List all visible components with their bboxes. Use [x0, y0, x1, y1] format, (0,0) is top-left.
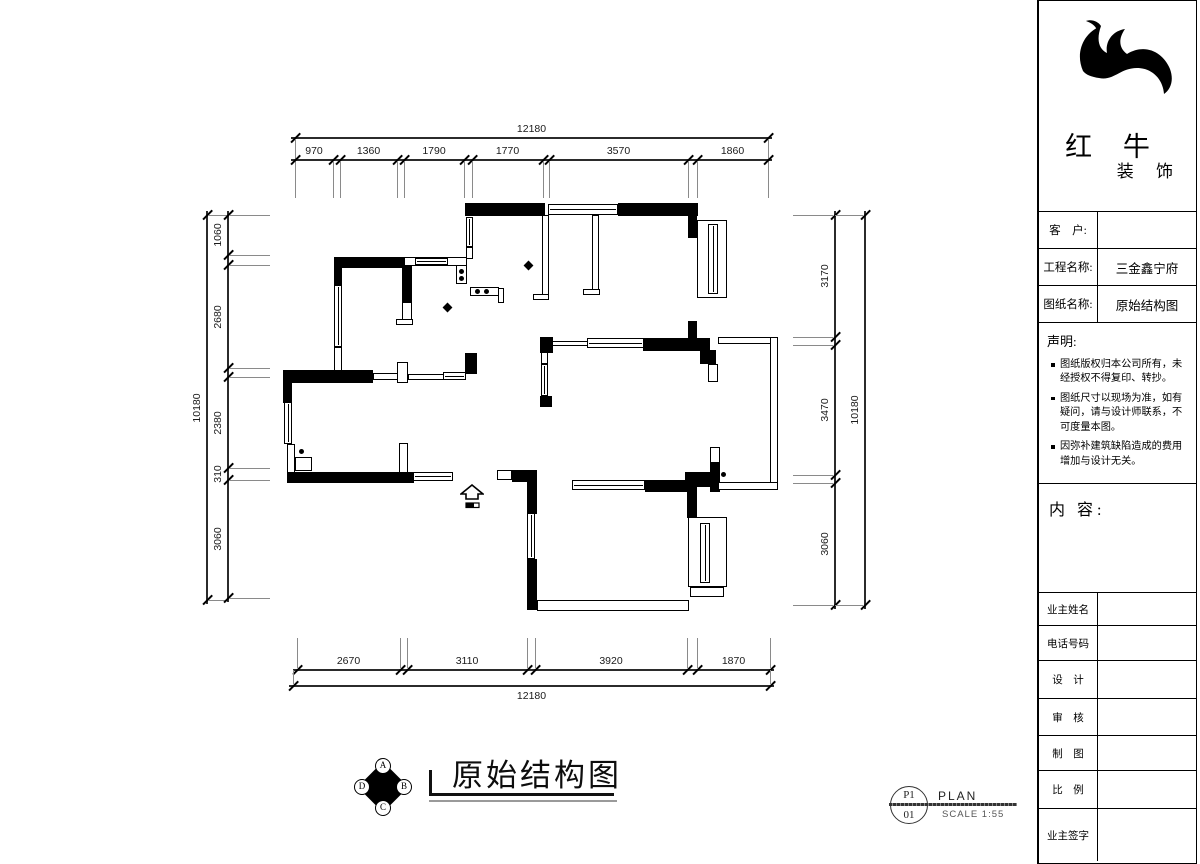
wall-segment	[527, 559, 537, 610]
window	[466, 217, 473, 247]
extension-line	[230, 265, 270, 266]
pipe-dot	[459, 269, 464, 274]
extension-line	[768, 162, 769, 198]
client-row: 客 户:	[1039, 212, 1196, 249]
compass-letter-d: D	[354, 779, 370, 795]
extension-line	[464, 162, 465, 198]
project-value: 三金鑫宁府	[1098, 249, 1196, 285]
project-label: 工程名称:	[1039, 249, 1098, 285]
partition-wall	[497, 470, 512, 480]
partition-wall	[399, 443, 408, 473]
content-label: 内 容:	[1039, 484, 1196, 520]
extension-line	[543, 162, 544, 198]
extension-line	[230, 468, 270, 469]
index-compass: A B C D	[354, 758, 412, 816]
partition-wall	[466, 247, 473, 259]
title-underline	[429, 793, 614, 796]
statement-title: 声明:	[1047, 331, 1190, 350]
partition-wall	[397, 362, 408, 383]
extension-line	[404, 162, 405, 198]
client-label: 客 户:	[1039, 212, 1098, 248]
scale-cell	[1098, 771, 1196, 808]
statement-item: 图纸版权归本公司所有，未经授权不得复印、转抄。	[1051, 358, 1190, 387]
wall-segment	[540, 396, 552, 407]
dimension-line	[834, 211, 835, 609]
drafter-label: 制 图	[1039, 736, 1098, 770]
extension-line	[230, 255, 270, 256]
window	[527, 513, 535, 559]
extension-line	[230, 598, 270, 599]
drafter-cell	[1098, 736, 1196, 770]
stamp-plan-label: PLAN	[938, 789, 977, 803]
company-name-sub: 装 饰	[1117, 157, 1182, 182]
compass-letter-c: C	[375, 800, 391, 816]
wall-segment	[687, 492, 697, 518]
dimension-label: 3060	[819, 532, 831, 555]
dimension-label: 12180	[517, 690, 546, 702]
wall-segment	[465, 353, 477, 374]
drawing-sheet: 1218097013601790177035701860267031103920…	[0, 0, 1200, 864]
extension-line	[535, 638, 536, 668]
sheet-index: 01	[891, 809, 927, 821]
dimension-line	[864, 211, 865, 609]
dimension-line	[227, 211, 228, 602]
pipe-dot	[484, 289, 489, 294]
partition-wall	[533, 294, 549, 300]
window	[415, 258, 448, 265]
window	[334, 285, 342, 347]
extension-line	[340, 162, 341, 198]
statement-list: 图纸版权归本公司所有，未经授权不得复印、转抄。 图纸尺寸以现场为准，如有疑问，请…	[1047, 358, 1190, 469]
partition-wall	[718, 482, 778, 490]
project-row: 工程名称: 三金鑫宁府	[1039, 249, 1196, 286]
drain-symbol	[523, 260, 533, 270]
extension-line	[793, 215, 833, 216]
designer-cell	[1098, 661, 1196, 698]
scale-label: 比 例	[1039, 771, 1098, 808]
phone-label: 电话号码	[1039, 626, 1098, 660]
extension-line	[230, 377, 270, 378]
extension-line	[407, 638, 408, 668]
compass-letter-a: A	[375, 758, 391, 774]
sheet-number-stamp: P1 01	[890, 786, 928, 824]
extension-line	[793, 483, 833, 484]
partition-wall	[295, 457, 312, 471]
sheet-code: P1	[891, 789, 927, 801]
dimension-label: 3110	[456, 655, 479, 667]
client-value	[1098, 212, 1196, 248]
window	[708, 224, 718, 294]
wall-segment	[685, 472, 710, 487]
extension-line	[230, 368, 270, 369]
extension-line	[835, 215, 863, 216]
wall-segment	[287, 472, 414, 483]
drawing-title: 原始结构图	[452, 750, 622, 795]
compass-letter-b: B	[396, 779, 412, 795]
window	[572, 480, 645, 490]
partition-wall	[583, 289, 600, 295]
extension-line	[397, 162, 398, 198]
sheet-name-row: 图纸名称: 原始结构图	[1039, 286, 1196, 323]
partition-wall	[708, 364, 718, 382]
pipe-dot	[299, 449, 304, 454]
dimension-label: 2380	[212, 411, 224, 434]
partition-wall	[541, 352, 548, 364]
company-logo-icon	[1057, 13, 1183, 121]
stamp-scale-label: SCALE 1:55	[942, 809, 1004, 820]
extension-line	[549, 162, 550, 198]
phone-cell	[1098, 626, 1196, 660]
drain-symbol	[442, 302, 452, 312]
window	[541, 364, 548, 396]
content-section: 内 容:	[1039, 484, 1196, 593]
reviewer-label: 审 核	[1039, 699, 1098, 735]
extension-line	[230, 215, 270, 216]
extension-line	[697, 162, 698, 198]
dimension-label: 2670	[337, 655, 360, 667]
extension-line	[293, 670, 294, 684]
partition-wall	[718, 337, 778, 344]
signature-section: 业主姓名 电话号码 设 计 审 核 制 图 比 例 业主签字	[1039, 593, 1196, 861]
partition-wall	[408, 374, 444, 380]
partition-wall	[690, 587, 724, 597]
partition-wall	[498, 288, 504, 303]
partition-wall	[456, 265, 467, 284]
partition-wall	[334, 347, 342, 371]
dimension-line	[291, 159, 772, 160]
extension-line	[297, 638, 298, 668]
dimension-label: 1860	[721, 145, 744, 157]
sheet-name-label: 图纸名称:	[1039, 286, 1098, 322]
reviewer-cell	[1098, 699, 1196, 735]
partition-wall	[542, 215, 549, 296]
wall-segment	[334, 267, 342, 285]
extension-line	[770, 670, 771, 684]
dimension-label: 3470	[819, 398, 831, 421]
owner-name-label: 业主姓名	[1039, 593, 1098, 625]
extension-line	[687, 638, 688, 668]
extension-line	[793, 337, 833, 338]
dimension-label: 310	[212, 465, 224, 483]
title-underline-shadow	[429, 800, 617, 802]
extension-line	[793, 345, 833, 346]
window	[443, 372, 466, 380]
partition-wall	[552, 341, 588, 346]
window	[413, 472, 453, 481]
designer-label: 设 计	[1039, 661, 1098, 698]
dimension-label: 10180	[849, 395, 861, 424]
owner-sign-cell	[1098, 809, 1196, 861]
dimension-line	[206, 211, 207, 604]
wall-segment	[688, 216, 697, 238]
dimension-label: 970	[305, 145, 323, 157]
wall-segment	[283, 370, 373, 383]
title-block: 红 牛 装 饰 客 户: 工程名称: 三金鑫宁府 图纸名称: 原始结构图 声明:	[1037, 0, 1197, 864]
wall-segment	[618, 203, 698, 216]
dimension-label: 1770	[496, 145, 519, 157]
pipe-dot	[475, 289, 480, 294]
wall-segment	[334, 257, 404, 268]
dimension-line	[291, 137, 772, 138]
window	[700, 523, 710, 583]
pipe-dot	[459, 276, 464, 281]
extension-line	[400, 638, 401, 668]
partition-wall	[373, 373, 398, 380]
window	[284, 402, 292, 444]
extension-line	[770, 638, 771, 668]
dimension-label: 1790	[422, 145, 445, 157]
wall-segment	[283, 383, 292, 403]
extension-line	[793, 605, 833, 606]
partition-wall	[396, 319, 413, 325]
dimension-label: 1060	[212, 223, 224, 246]
extension-line	[472, 162, 473, 198]
dimension-label: 3920	[599, 655, 622, 667]
extension-line	[688, 162, 689, 198]
extension-line	[527, 638, 528, 668]
partition-wall	[770, 337, 778, 490]
extension-line	[835, 605, 863, 606]
wall-segment	[700, 350, 716, 364]
dimension-label: 1870	[722, 655, 745, 667]
window	[587, 338, 644, 348]
dimension-line	[289, 685, 774, 686]
extension-line	[295, 162, 296, 198]
pipe-dot	[721, 472, 726, 477]
dimension-label: 3570	[607, 145, 630, 157]
dimension-label: 10180	[191, 393, 203, 422]
dimension-label: 3060	[212, 527, 224, 550]
dimension-label: 1360	[357, 145, 380, 157]
extension-line	[230, 480, 270, 481]
dimension-label: 12180	[517, 123, 546, 135]
statement-item: 图纸尺寸以现场为准，如有疑问，请与设计师联系，不可度量本图。	[1051, 392, 1190, 435]
statement-section: 声明: 图纸版权归本公司所有，未经授权不得复印、转抄。 图纸尺寸以现场为准，如有…	[1039, 323, 1196, 484]
partition-wall	[592, 215, 599, 292]
statement-item: 因弥补建筑缺陷造成的费用增加与设计无关。	[1051, 440, 1190, 469]
wall-segment	[527, 470, 537, 514]
partition-wall	[537, 600, 689, 611]
dimension-label: 3170	[819, 264, 831, 287]
owner-sign-label: 业主签字	[1039, 809, 1098, 861]
sheet-name-value: 原始结构图	[1098, 286, 1196, 322]
extension-line	[697, 638, 698, 668]
wall-segment	[465, 203, 545, 216]
partition-wall	[287, 444, 295, 473]
extension-line	[333, 162, 334, 198]
owner-name-cell	[1098, 593, 1196, 625]
logo-section: 红 牛 装 饰	[1039, 1, 1196, 212]
dimension-label: 2680	[212, 305, 224, 328]
window	[548, 204, 618, 215]
extension-line	[793, 475, 833, 476]
partition-wall	[710, 447, 720, 463]
entry-door-icon	[460, 484, 484, 516]
